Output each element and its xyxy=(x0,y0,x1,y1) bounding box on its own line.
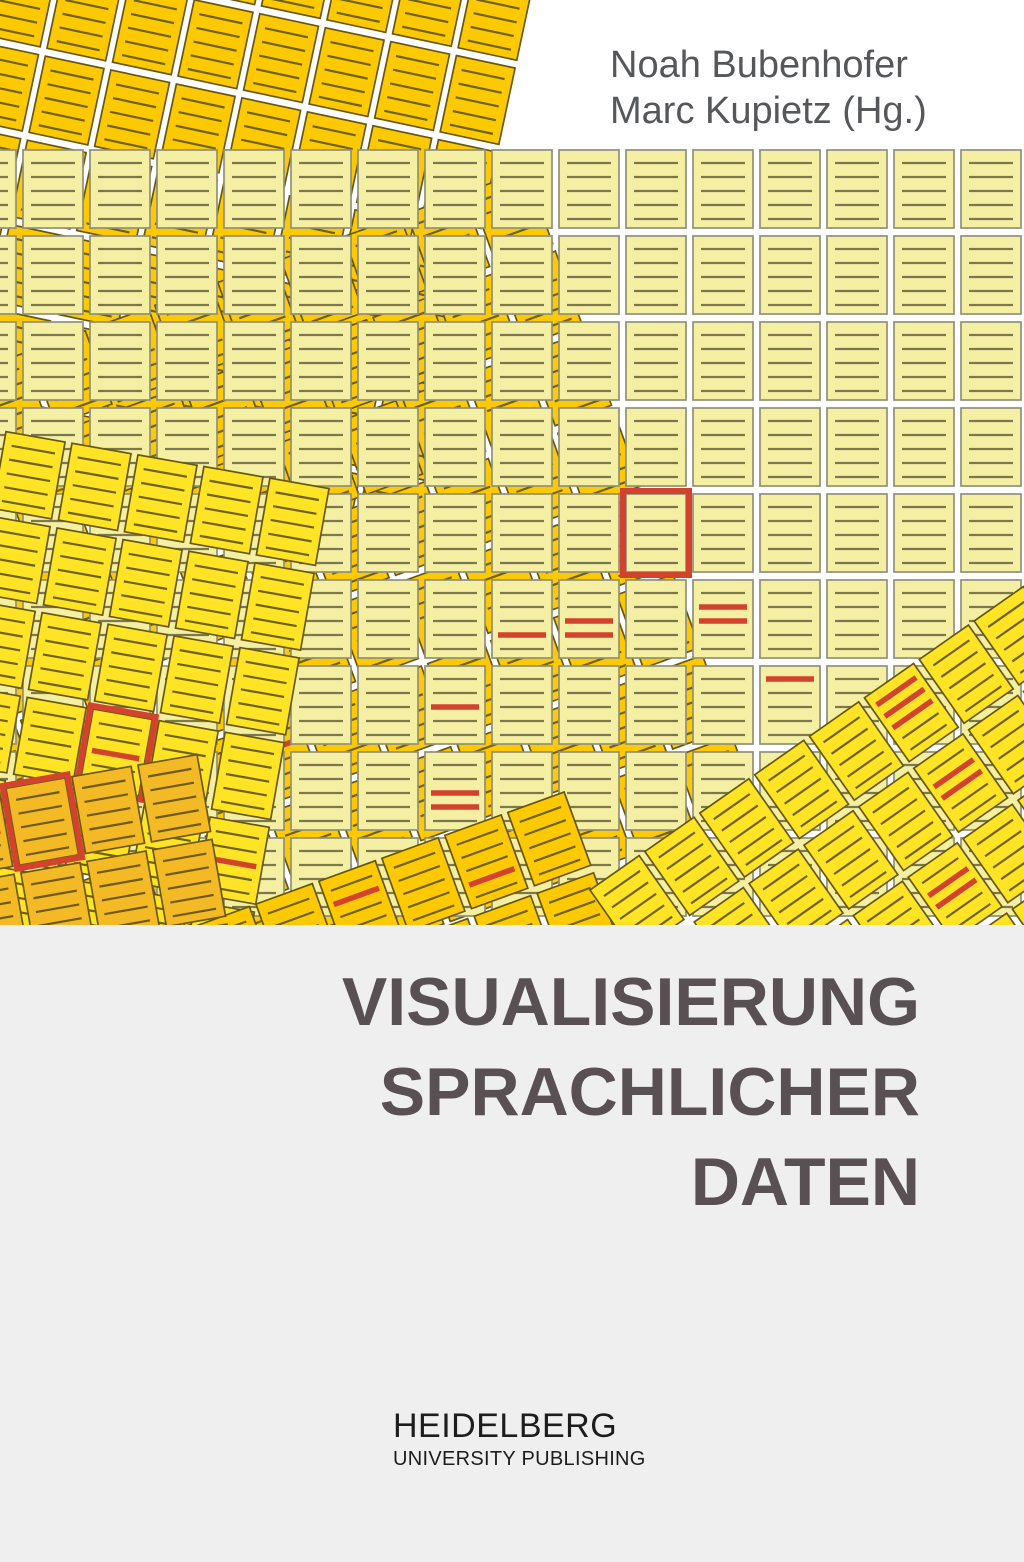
document-tile xyxy=(559,666,619,744)
document-tile xyxy=(425,408,485,486)
document-tile xyxy=(827,150,887,228)
document-tile xyxy=(961,494,1021,572)
document-tile xyxy=(113,0,188,75)
document-tile xyxy=(693,150,753,228)
document-tile xyxy=(492,408,552,486)
document-tile xyxy=(961,408,1021,486)
document-tile xyxy=(559,322,619,400)
document-tile xyxy=(29,56,104,145)
document-grids-artwork xyxy=(0,0,1024,925)
document-tile xyxy=(23,150,83,228)
document-tile xyxy=(626,752,686,830)
document-tile xyxy=(161,636,234,723)
publisher-subtitle: UNIVERSITY PUBLISHING xyxy=(393,1448,646,1470)
document-tile xyxy=(29,613,102,700)
document-tile xyxy=(458,0,533,60)
document-tile xyxy=(626,408,686,486)
document-tile xyxy=(95,70,170,159)
book-title-line-3: DATEN xyxy=(342,1137,920,1227)
publisher-logo: HEIDELBERG UNIVERSITY PUBLISHING xyxy=(393,1408,646,1470)
document-tile xyxy=(138,755,211,842)
document-tile xyxy=(492,580,552,658)
document-tile xyxy=(693,494,753,572)
document-tile xyxy=(291,666,351,744)
document-tile xyxy=(492,494,552,572)
document-tile xyxy=(626,236,686,314)
document-tile xyxy=(58,443,131,530)
document-tile xyxy=(375,42,450,131)
document-tile xyxy=(0,0,56,47)
document-tile xyxy=(90,322,150,400)
document-tile xyxy=(358,494,418,572)
document-tile xyxy=(693,236,753,314)
document-tile xyxy=(0,322,16,400)
document-tile xyxy=(14,697,87,784)
document-tile xyxy=(291,150,351,228)
document-tile xyxy=(492,236,552,314)
author-block: Noah Bubenhofer Marc Kupietz (Hg.) xyxy=(610,42,927,134)
document-tile xyxy=(559,580,619,658)
document-tile xyxy=(224,322,284,400)
document-tile xyxy=(760,236,820,314)
document-tile xyxy=(559,150,619,228)
document-tile xyxy=(961,322,1021,400)
document-tile xyxy=(961,236,1021,314)
document-tile xyxy=(492,150,552,228)
document-tile xyxy=(693,408,753,486)
document-tile xyxy=(90,236,150,314)
document-tile xyxy=(425,150,485,228)
document-tile xyxy=(43,528,116,615)
document-tile xyxy=(425,666,485,744)
document-tile xyxy=(358,236,418,314)
document-tile xyxy=(894,322,954,400)
document-tile xyxy=(244,14,319,103)
document-tile xyxy=(827,322,887,400)
document-tile xyxy=(440,56,515,145)
document-tile xyxy=(157,322,217,400)
document-tile xyxy=(693,666,753,744)
book-title-line-1: VISUALISIERUNG xyxy=(342,957,920,1047)
document-tile xyxy=(827,236,887,314)
document-tile xyxy=(153,839,226,925)
book-title-line-2: SPRACHLICHER xyxy=(342,1047,920,1137)
document-tile xyxy=(358,408,418,486)
document-tile xyxy=(358,150,418,228)
document-tile xyxy=(760,150,820,228)
document-tile xyxy=(124,455,197,542)
document-tile xyxy=(0,236,16,314)
document-tile xyxy=(425,322,485,400)
document-tile xyxy=(693,580,753,658)
document-tile xyxy=(894,150,954,228)
document-tile xyxy=(358,580,418,658)
author-line-2: Marc Kupietz (Hg.) xyxy=(610,88,927,134)
book-cover: Noah Bubenhofer Marc Kupietz (Hg.) VISUA… xyxy=(0,0,1024,1562)
document-tile xyxy=(157,236,217,314)
document-tile xyxy=(425,580,485,658)
document-tile xyxy=(425,752,485,830)
document-tile xyxy=(760,408,820,486)
document-tile xyxy=(226,648,299,735)
document-tile xyxy=(894,408,954,486)
document-tile xyxy=(626,666,686,744)
document-tile xyxy=(425,494,485,572)
document-tile xyxy=(256,478,329,565)
publisher-name: HEIDELBERG xyxy=(393,1408,646,1445)
document-tile xyxy=(224,150,284,228)
document-tile xyxy=(760,494,820,572)
document-tile xyxy=(291,322,351,400)
document-tile xyxy=(47,0,122,61)
document-tile xyxy=(109,540,182,627)
document-tile xyxy=(827,408,887,486)
document-tile xyxy=(760,666,820,744)
document-tile xyxy=(425,236,485,314)
document-tile xyxy=(157,150,217,228)
document-tile xyxy=(327,0,402,32)
document-tile xyxy=(827,580,887,658)
document-tile xyxy=(90,150,150,228)
document-tile xyxy=(393,0,468,46)
document-tile xyxy=(492,666,552,744)
document-tile xyxy=(693,322,753,400)
document-tile xyxy=(894,494,954,572)
document-tile xyxy=(3,774,83,868)
document-tile xyxy=(358,666,418,744)
document-tile xyxy=(626,322,686,400)
document-tile xyxy=(358,752,418,830)
cover-artwork xyxy=(0,0,1024,925)
document-tile xyxy=(291,236,351,314)
document-tile xyxy=(212,732,285,819)
document-tile xyxy=(291,752,351,830)
document-tile xyxy=(175,551,248,638)
document-tile xyxy=(358,322,418,400)
document-tile xyxy=(492,322,552,400)
document-tile xyxy=(224,236,284,314)
document-tile xyxy=(241,563,314,650)
document-tile xyxy=(178,0,253,89)
document-tile xyxy=(23,322,83,400)
document-tile xyxy=(559,236,619,314)
document-tile xyxy=(95,624,168,711)
document-tile xyxy=(760,322,820,400)
document-tile xyxy=(72,766,145,853)
document-tile xyxy=(87,851,160,925)
document-tile xyxy=(559,494,619,572)
document-tile xyxy=(827,494,887,572)
document-tile xyxy=(623,491,689,575)
document-tile xyxy=(559,408,619,486)
document-tile xyxy=(961,150,1021,228)
document-tile xyxy=(760,580,820,658)
document-tile xyxy=(626,580,686,658)
document-tile xyxy=(894,236,954,314)
book-title: VISUALISIERUNG SPRACHLICHER DATEN xyxy=(342,957,920,1227)
document-tile xyxy=(23,236,83,314)
document-tile xyxy=(190,467,263,554)
document-tile xyxy=(291,408,351,486)
document-tile xyxy=(626,150,686,228)
document-tile xyxy=(0,150,16,228)
document-tile xyxy=(309,28,384,117)
author-line-1: Noah Bubenhofer xyxy=(610,42,927,88)
